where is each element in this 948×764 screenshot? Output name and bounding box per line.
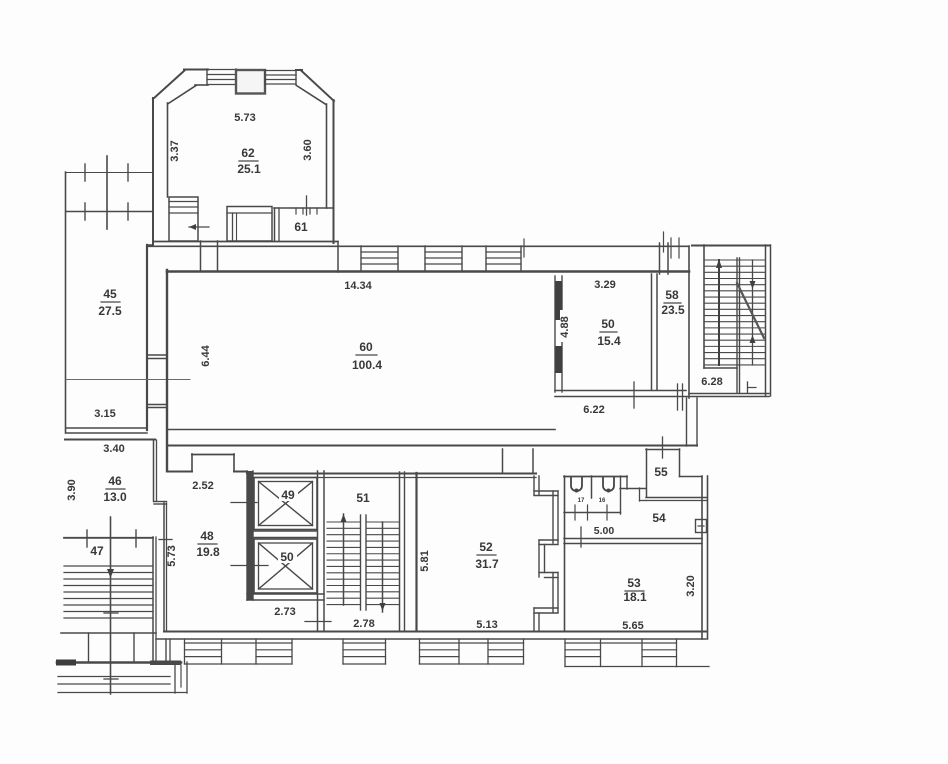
svg-text:2.52: 2.52 (192, 480, 213, 492)
svg-text:54: 54 (652, 511, 666, 525)
svg-text:2.73: 2.73 (274, 606, 295, 618)
svg-text:5.73: 5.73 (234, 112, 255, 124)
svg-text:3.60: 3.60 (302, 139, 314, 160)
svg-text:47: 47 (90, 544, 104, 558)
svg-text:2.78: 2.78 (353, 618, 374, 630)
svg-text:3.40: 3.40 (103, 443, 124, 455)
svg-text:45: 45 (103, 287, 117, 301)
svg-text:49: 49 (281, 488, 295, 502)
svg-text:61: 61 (294, 220, 308, 234)
svg-text:13.0: 13.0 (103, 490, 127, 504)
svg-text:5.13: 5.13 (476, 619, 497, 631)
svg-text:16: 16 (599, 498, 606, 504)
svg-text:3.29: 3.29 (594, 279, 615, 291)
svg-text:5.81: 5.81 (419, 550, 431, 571)
svg-text:27.5: 27.5 (98, 304, 122, 318)
svg-text:6.28: 6.28 (701, 376, 722, 388)
svg-text:48: 48 (200, 529, 214, 543)
svg-text:50: 50 (601, 317, 615, 331)
svg-text:17: 17 (578, 498, 585, 504)
svg-text:3.37: 3.37 (169, 140, 181, 161)
svg-text:62: 62 (241, 146, 255, 160)
svg-text:52: 52 (479, 540, 493, 554)
svg-text:60: 60 (359, 340, 373, 354)
svg-text:53: 53 (627, 576, 641, 590)
svg-text:5.65: 5.65 (622, 620, 643, 632)
svg-text:6.44: 6.44 (200, 344, 212, 366)
svg-text:5.00: 5.00 (594, 525, 615, 537)
svg-text:55: 55 (654, 465, 668, 479)
svg-text:50: 50 (280, 550, 294, 564)
svg-text:25.1: 25.1 (237, 162, 261, 176)
svg-text:5.73: 5.73 (166, 545, 178, 566)
svg-text:14.34: 14.34 (344, 280, 372, 292)
svg-text:3.15: 3.15 (94, 408, 115, 420)
svg-text:6.22: 6.22 (583, 404, 604, 416)
svg-text:18.1: 18.1 (623, 590, 647, 604)
svg-text:51: 51 (356, 491, 370, 505)
svg-text:4.88: 4.88 (559, 316, 571, 337)
svg-text:46: 46 (108, 474, 122, 488)
svg-text:15.4: 15.4 (597, 334, 621, 348)
svg-text:23.5: 23.5 (661, 303, 685, 317)
svg-text:31.7: 31.7 (475, 557, 499, 571)
svg-text:19.8: 19.8 (196, 545, 220, 559)
svg-text:3.20: 3.20 (685, 575, 697, 596)
svg-text:58: 58 (665, 288, 679, 302)
svg-text:3.90: 3.90 (66, 479, 78, 500)
svg-text:100.4: 100.4 (352, 358, 382, 372)
